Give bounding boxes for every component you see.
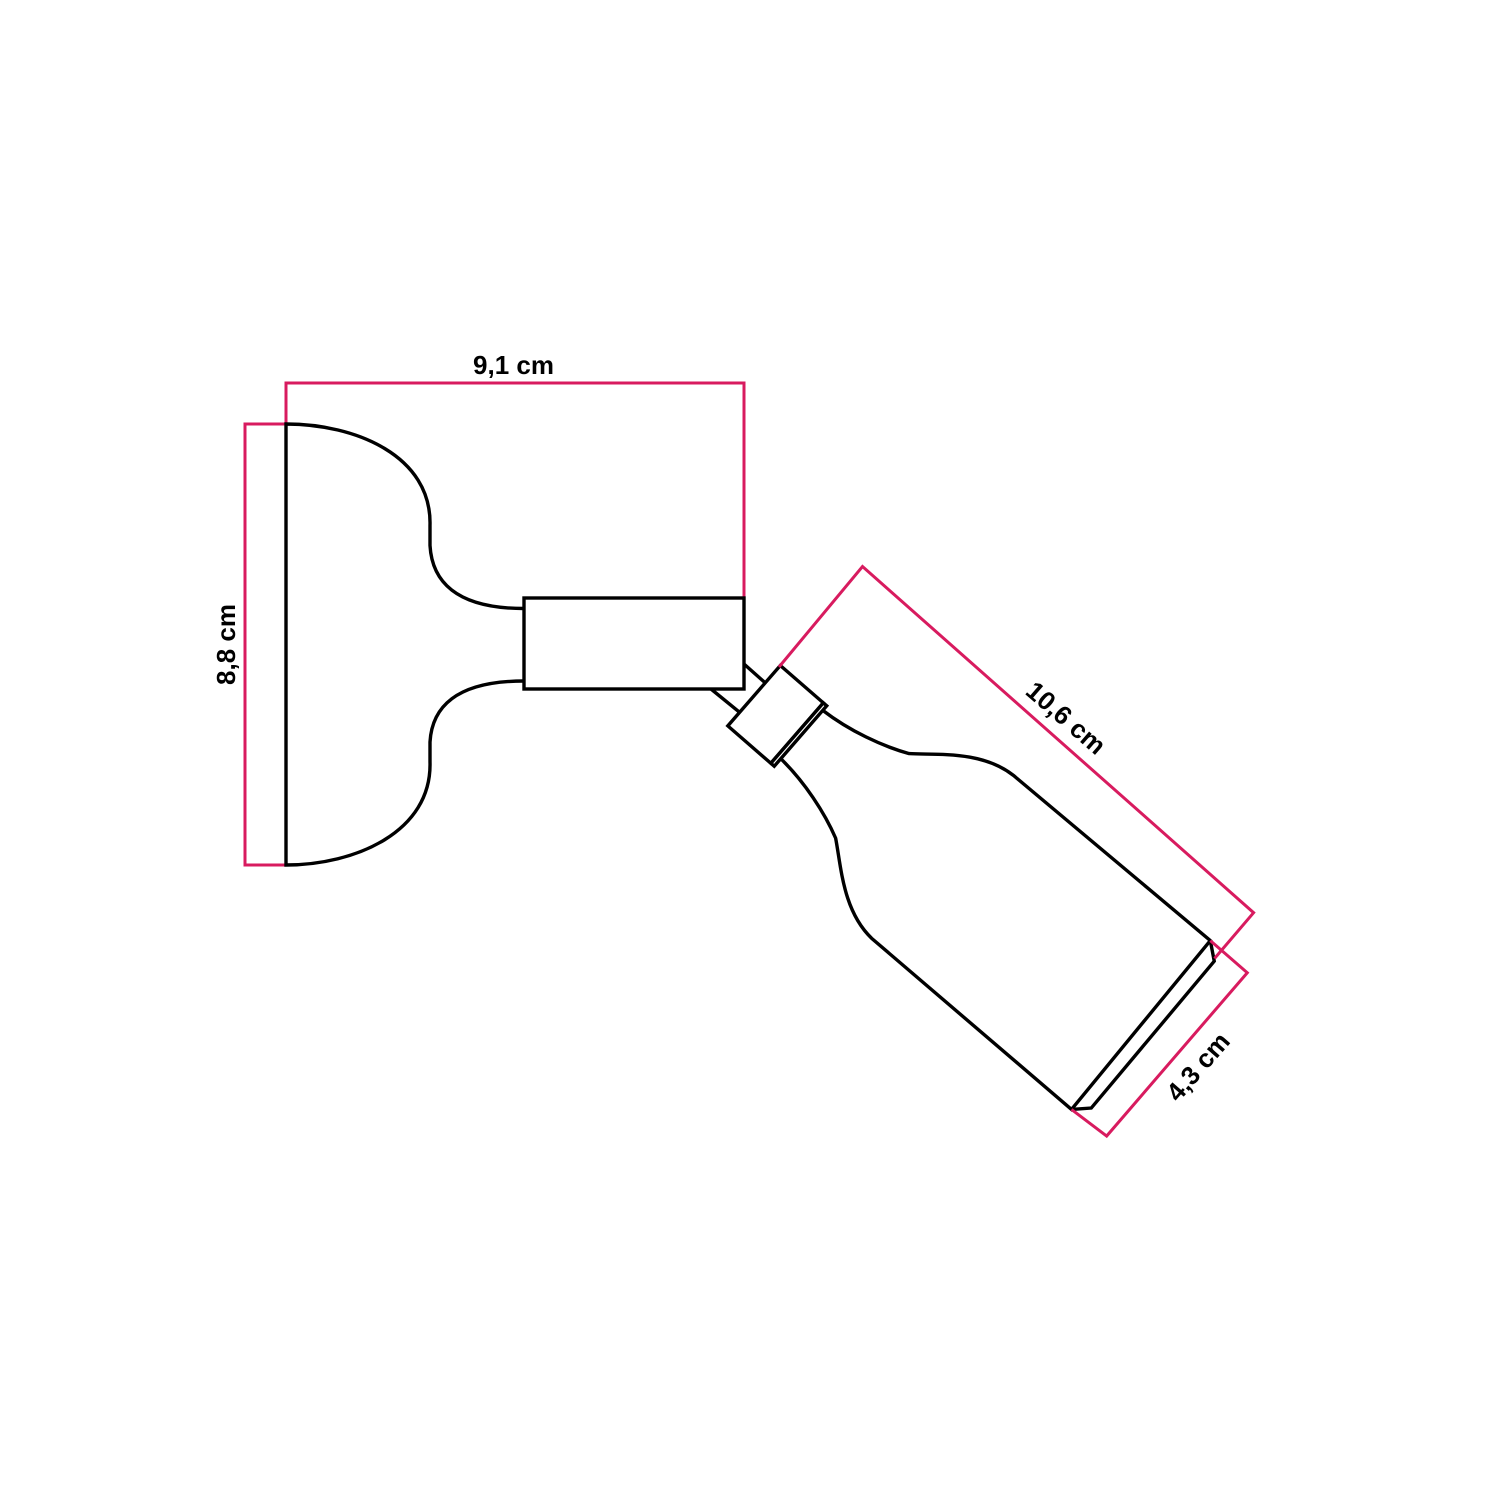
svg-text:9,1 cm: 9,1 cm <box>473 350 554 380</box>
svg-text:8,8 cm: 8,8 cm <box>211 604 241 685</box>
